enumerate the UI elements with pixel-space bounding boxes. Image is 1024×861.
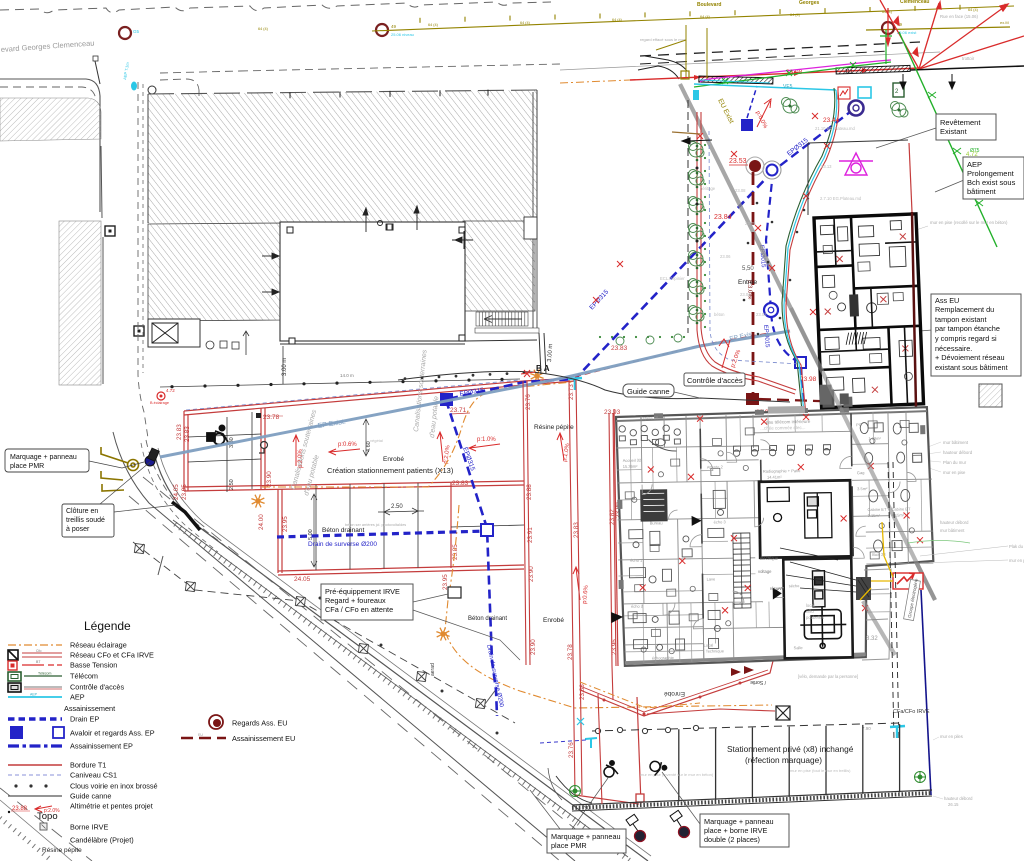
svg-text:23.93: 23.93 [604, 409, 621, 416]
svg-text:Résine pépite: Résine pépite [42, 847, 82, 854]
svg-text:AEP: AEP [967, 160, 982, 169]
svg-text:Création stationnement patient: Création stationnement patients (X13) [327, 466, 454, 475]
svg-text:23.88: 23.88 [526, 484, 533, 500]
svg-text:p:0.6%: p:0.6% [338, 442, 357, 448]
svg-text:23.06: 23.06 [720, 254, 731, 259]
svg-text:mur en piles: mur en piles [940, 734, 963, 739]
svg-text:23.76: 23.76 [525, 394, 532, 410]
svg-text:14.41m²: 14.41m² [767, 474, 782, 479]
svg-text:local: local [806, 603, 815, 608]
svg-text:Basse Tension: Basse Tension [70, 661, 117, 670]
svg-text:Bureau: Bureau [650, 520, 663, 525]
svg-text:23.83: 23.83 [611, 345, 628, 352]
svg-text:végétal: végétal [370, 438, 383, 443]
svg-text:vélo: vélo [806, 609, 814, 614]
svg-text:3.15m²: 3.15m² [868, 513, 881, 518]
svg-text:Assainissement EU: Assainissement EU [232, 734, 295, 743]
svg-text:électrique: électrique [760, 556, 779, 561]
svg-text:Télécom: Télécom [38, 672, 52, 676]
svg-text:4.72: 4.72 [166, 388, 175, 393]
svg-text:mur en pise (inventé sur le mu: mur en pise (inventé sur le mur en béton… [640, 772, 714, 777]
svg-text:1 19m²: 1 19m² [868, 436, 881, 441]
svg-text:Prolongement: Prolongement [967, 169, 1015, 178]
svg-text:24.00: 24.00 [258, 514, 265, 530]
svg-text:Plak du Mur: Plak du Mur [1009, 544, 1024, 549]
svg-text:VE5: VE5 [783, 84, 793, 90]
svg-text:béton: béton [714, 312, 725, 317]
svg-text:23.08: 23.08 [735, 188, 746, 193]
svg-text:Béton drainant: Béton drainant [468, 616, 507, 622]
svg-text:23.84: 23.84 [714, 214, 732, 221]
svg-text:Georges: Georges [799, 0, 820, 6]
svg-text:Technique: Technique [706, 648, 725, 653]
svg-text:Béton drainant: Béton drainant [322, 527, 364, 534]
svg-text:tampon existant: tampon existant [935, 315, 987, 324]
svg-text:64 (4): 64 (4) [612, 18, 623, 22]
svg-text:mur en pise: mur en pise [943, 470, 966, 475]
svg-text:place + borne IRVE: place + borne IRVE [704, 826, 767, 835]
svg-text:Marquage + panneau: Marquage + panneau [704, 817, 774, 826]
svg-text:Lave: Lave [707, 576, 717, 581]
svg-text:Local: Local [704, 643, 714, 648]
svg-text:Clous voirie en inox brossé: Clous voirie en inox brossé [70, 782, 158, 791]
svg-text:23.53: 23.53 [729, 158, 747, 165]
svg-text:64 (4): 64 (4) [258, 27, 269, 31]
svg-text:23.04: 23.04 [740, 292, 751, 297]
svg-text:(réfection marquage): (réfection marquage) [745, 755, 822, 765]
svg-text:Stationnement privé (x8) incha: Stationnement privé (x8) inchangé [727, 744, 854, 754]
svg-text:échographie: échographie [652, 655, 675, 660]
svg-text:Attente 2: Attente 2 [707, 464, 724, 469]
svg-text:64 (4): 64 (4) [968, 8, 979, 12]
svg-text:Assainissement EP: Assainissement EP [70, 742, 133, 751]
svg-text:p:1.0%: p:1.0% [477, 437, 496, 443]
svg-text:CFa/CFo IRVE: CFa/CFo IRVE [893, 709, 930, 715]
svg-text:y compris regard si: y compris regard si [935, 334, 997, 343]
svg-text:Gag: Gag [857, 470, 865, 475]
svg-text:23.85: 23.85 [452, 544, 459, 560]
svg-text:mur en pise (tout le mur en tr: mur en pise (tout le mur en treillis) [790, 768, 851, 773]
svg-text:Enrobé: Enrobé [383, 456, 404, 463]
svg-text:Télécom: Télécom [70, 672, 98, 681]
svg-text:Légende: Légende [84, 619, 131, 633]
svg-text:voltage: voltage [758, 569, 772, 574]
svg-text:26.15: 26.15 [948, 802, 959, 807]
svg-text:Entrée: Entrée [738, 279, 758, 286]
svg-text:héritage: héritage [700, 186, 716, 191]
svg-text:bâtiment: bâtiment [967, 187, 997, 196]
svg-text:23.44: 23.44 [823, 117, 840, 124]
svg-text:Réseau CFo et CFa IRVE: Réseau CFo et CFa IRVE [70, 651, 154, 660]
svg-text:Topo: Topo [37, 811, 58, 822]
svg-text:25.06 niveau: 25.06 niveau [391, 32, 414, 37]
svg-text:2.7.10 EG.Plateau.md: 2.7.10 EG.Plateau.md [820, 196, 862, 201]
svg-text:Bch exist sous: Bch exist sous [967, 178, 1016, 187]
svg-text:/ Sortie: / Sortie [750, 679, 766, 685]
svg-text:Clôture en: Clôture en [66, 508, 98, 515]
svg-text:+ Dévoiement réseau: + Dévoiement réseau [935, 353, 1005, 362]
svg-text:Bordure T1: Bordure T1 [70, 761, 106, 770]
svg-text:2.50: 2.50 [391, 504, 403, 510]
svg-text:Guide canne: Guide canne [70, 792, 111, 801]
svg-text:CFa / CFo en attente: CFa / CFo en attente [325, 605, 393, 614]
svg-text:hauteur débord: hauteur débord [944, 796, 973, 801]
svg-text:21.10 BD.Plateau.md: 21.10 BD.Plateau.md [815, 126, 855, 131]
svg-text:Accueil 32: Accueil 32 [623, 458, 642, 463]
svg-text:double (2 places): double (2 places) [704, 835, 760, 844]
svg-text:Réseau éclairage: Réseau éclairage [70, 641, 127, 650]
svg-text:Avaloir et regards Ass. EP: Avaloir et regards Ass. EP [70, 729, 155, 738]
svg-text:trottoir: trottoir [962, 56, 975, 61]
svg-text:Caniveau CS1: Caniveau CS1 [70, 771, 117, 780]
svg-text:...chée commée élec...: ...chée commée élec... [760, 425, 805, 431]
svg-text:24.05: 24.05 [294, 576, 311, 583]
svg-text:Altimétrie et pentes projet: Altimétrie et pentes projet [70, 802, 153, 811]
svg-text:mur bâtiment: mur bâtiment [943, 440, 969, 445]
svg-text:G5: G5 [133, 29, 140, 34]
svg-text:Candélàbre (Projet): Candélàbre (Projet) [70, 836, 134, 845]
svg-text:regard effacé sous le mur: regard effacé sous le mur [640, 37, 686, 42]
svg-text:23.95: 23.95 [181, 484, 188, 500]
svg-text:23.90: 23.90 [530, 639, 537, 655]
svg-text:treillis soudé: treillis soudé [66, 517, 105, 524]
svg-text:aerad: aerad [430, 663, 436, 676]
svg-text:23.95: 23.95 [282, 516, 289, 532]
svg-text:23.83: 23.83 [184, 426, 191, 442]
svg-text:à poser: à poser [66, 526, 90, 533]
svg-text:23.78: 23.78 [263, 414, 280, 421]
svg-text:23.13: 23.13 [821, 164, 832, 169]
svg-text:B A: B A [536, 364, 550, 373]
svg-text:Existant: Existant [940, 127, 968, 136]
svg-text:2.50: 2.50 [229, 479, 235, 490]
svg-text:...eau télécom intérieure: ...eau télécom intérieure [762, 419, 811, 425]
svg-text:écho 1: écho 1 [630, 558, 643, 563]
svg-text:64 (4): 64 (4) [790, 13, 801, 17]
svg-text:AEP: AEP [70, 693, 85, 702]
svg-text:Enrobé: Enrobé [543, 617, 564, 624]
svg-text:Drain EP: Drain EP [70, 715, 99, 724]
svg-text:poubelles: poubelles [806, 615, 824, 620]
svg-text:Regard + foureaux: Regard + foureaux [325, 596, 386, 605]
svg-text:Cfo: Cfo [36, 649, 42, 653]
svg-text:64 (4): 64 (4) [520, 21, 531, 25]
svg-text:Regards Ass. EU: Regards Ass. EU [232, 719, 288, 728]
svg-text:Espère 50: Espère 50 [640, 415, 659, 420]
svg-text:[vélo, demande par la personne: [vélo, demande par la personne] [798, 674, 858, 679]
svg-text:Résine pépite: Résine pépite [534, 424, 574, 431]
svg-text:Drain de surverse Ø200: Drain de surverse Ø200 [308, 541, 377, 548]
svg-text:Salle: Salle [794, 645, 804, 650]
svg-text:EU: EU [198, 733, 203, 737]
svg-text:Ass EU: Ass EU [935, 296, 959, 305]
svg-text:asc: asc [739, 600, 745, 605]
svg-text:sécho: sécho [789, 583, 801, 588]
svg-text:Radiographie + Patio: Radiographie + Patio [763, 468, 801, 474]
svg-text:ECL.Pépinier: ECL.Pépinier [660, 276, 685, 281]
svg-text:PC: PC [856, 422, 862, 427]
svg-text:5,50: 5,50 [742, 266, 754, 272]
svg-text:B.éclairage: B.éclairage [150, 401, 169, 405]
svg-text:Pré-équippement IRVE: Pré-équippement IRVE [325, 587, 400, 596]
svg-text:Clémenceau: Clémenceau [900, 0, 929, 5]
svg-text:23.83: 23.83 [573, 522, 580, 538]
svg-text:Assainissement: Assainissement [64, 704, 115, 713]
svg-text:4.72: 4.72 [966, 152, 978, 158]
svg-text:mur bâtiment: mur bâtiment [940, 528, 965, 533]
svg-text:hauteur débord: hauteur débord [943, 450, 973, 455]
svg-text:Borne IRVE: Borne IRVE [70, 823, 109, 832]
svg-text:23.03: 23.03 [756, 312, 767, 317]
svg-text:23.90: 23.90 [266, 471, 273, 487]
svg-text:3.00 m: 3.00 m [282, 358, 288, 376]
svg-text:Contrôle d'accès: Contrôle d'accès [70, 683, 124, 692]
svg-text:24.05: 24.05 [173, 484, 180, 500]
svg-text:mur en pise: mur en pise [1009, 558, 1024, 563]
svg-text:Enrobé: Enrobé [664, 690, 685, 697]
svg-text:64 (4): 64 (4) [700, 15, 711, 19]
svg-text:nécessaire.: nécessaire. [935, 344, 972, 353]
svg-text:Plan du mur: Plan du mur [943, 460, 967, 465]
svg-text:Marquage + panneau: Marquage + panneau [551, 832, 621, 841]
svg-text:3.5m²: 3.5m² [857, 486, 868, 491]
svg-text:Revêtement: Revêtement [940, 118, 981, 127]
svg-text:15.36m²: 15.36m² [623, 464, 638, 469]
svg-text:écho 2: écho 2 [631, 604, 644, 609]
svg-text:écho 3: écho 3 [714, 519, 727, 524]
svg-text:Boulevard: Boulevard [697, 2, 721, 8]
svg-text:Guide canne: Guide canne [627, 387, 670, 396]
svg-text:par tampon étanche: par tampon étanche [935, 324, 1000, 333]
svg-text:AEP: AEP [30, 693, 38, 697]
svg-text:ex.M: ex.M [1000, 20, 1009, 25]
svg-text:Contrôle d'accès: Contrôle d'accès [687, 376, 743, 385]
svg-text:mur en pise (recollé sur le mu: mur en pise (recollé sur le mur en béton… [930, 220, 1008, 225]
svg-text:3.00 m: 3.00 m [547, 343, 554, 362]
svg-text:hauteur débord: hauteur débord [940, 520, 969, 525]
svg-text:existant sous bâtiment: existant sous bâtiment [935, 363, 1008, 372]
svg-text:Remplacement du: Remplacement du [935, 305, 994, 314]
svg-text:Cabine ET: Cabine ET [867, 507, 887, 512]
svg-text:23.83: 23.83 [176, 424, 183, 440]
svg-text:réserve: réserve [770, 586, 785, 591]
svg-text:Marquage + panneau: Marquage + panneau [10, 454, 77, 461]
svg-text:place PMR: place PMR [551, 841, 587, 850]
svg-text:Rue en face (15.06): Rue en face (15.06) [940, 14, 979, 19]
svg-text:14.0 m: 14.0 m [340, 373, 354, 378]
svg-text:8.32: 8.32 [866, 636, 878, 642]
svg-text:111: 111 [845, 69, 853, 75]
svg-text:64 (4): 64 (4) [428, 23, 439, 27]
svg-text:49: 49 [391, 24, 397, 29]
svg-text:place PMR: place PMR [10, 463, 44, 470]
svg-text:23.83: 23.83 [452, 480, 469, 487]
svg-text:23.05: 23.05 [745, 221, 756, 226]
